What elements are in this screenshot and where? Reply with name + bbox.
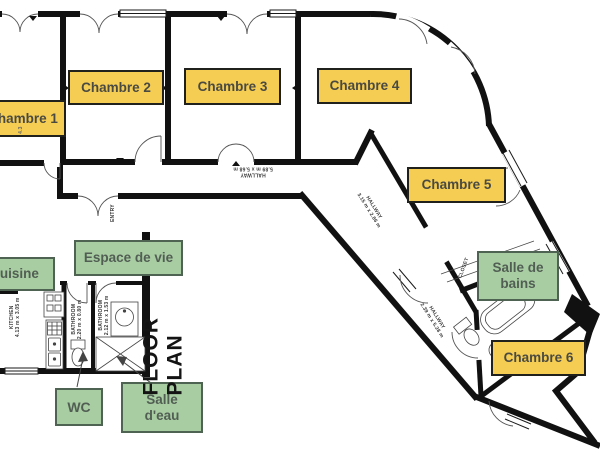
room-label-chambre-6: Chambre 6 bbox=[491, 340, 586, 376]
room-label-chambre-5: Chambre 5 bbox=[407, 167, 506, 203]
room-label-chambre-1: Chambre 1 bbox=[0, 100, 66, 137]
annotation-dim-ch1: 4.3 bbox=[18, 115, 24, 145]
stove-icon bbox=[44, 292, 64, 317]
annotation-hallway-main: HALLWAY 5.89 m x 5.68 m bbox=[223, 165, 283, 178]
page-title: FLOOR PLAN bbox=[151, 261, 177, 396]
bathroom-sink-icon bbox=[111, 302, 138, 336]
room-label-chambre-2: Chambre 2 bbox=[68, 70, 164, 105]
annotation-entry: ENTRY bbox=[110, 193, 116, 233]
kitchen-sink-icon bbox=[46, 320, 63, 369]
room-label-chambre-3: Chambre 3 bbox=[184, 68, 281, 105]
room-label-wc: WC bbox=[55, 388, 103, 426]
room-label-chambre-4: Chambre 4 bbox=[317, 68, 412, 104]
room-label-cuisine: Cuisine bbox=[0, 257, 55, 291]
annotation-bathroom-eau: BATHROOM 2.12 m x 1.53 m bbox=[98, 285, 111, 345]
floor-plan: Chambre 1 Chambre 2 Chambre 3 Chambre 4 … bbox=[0, 0, 600, 450]
annotation-bathroom-wc: BATHROOM 2.20 m x 0.80 m bbox=[71, 289, 84, 349]
room-label-salle-de-bains: Salle de bains bbox=[477, 251, 559, 301]
floor-plan-linework bbox=[0, 0, 600, 450]
annotation-kitchen: KITCHEN 4.13 m x 3.05 m bbox=[9, 287, 22, 347]
